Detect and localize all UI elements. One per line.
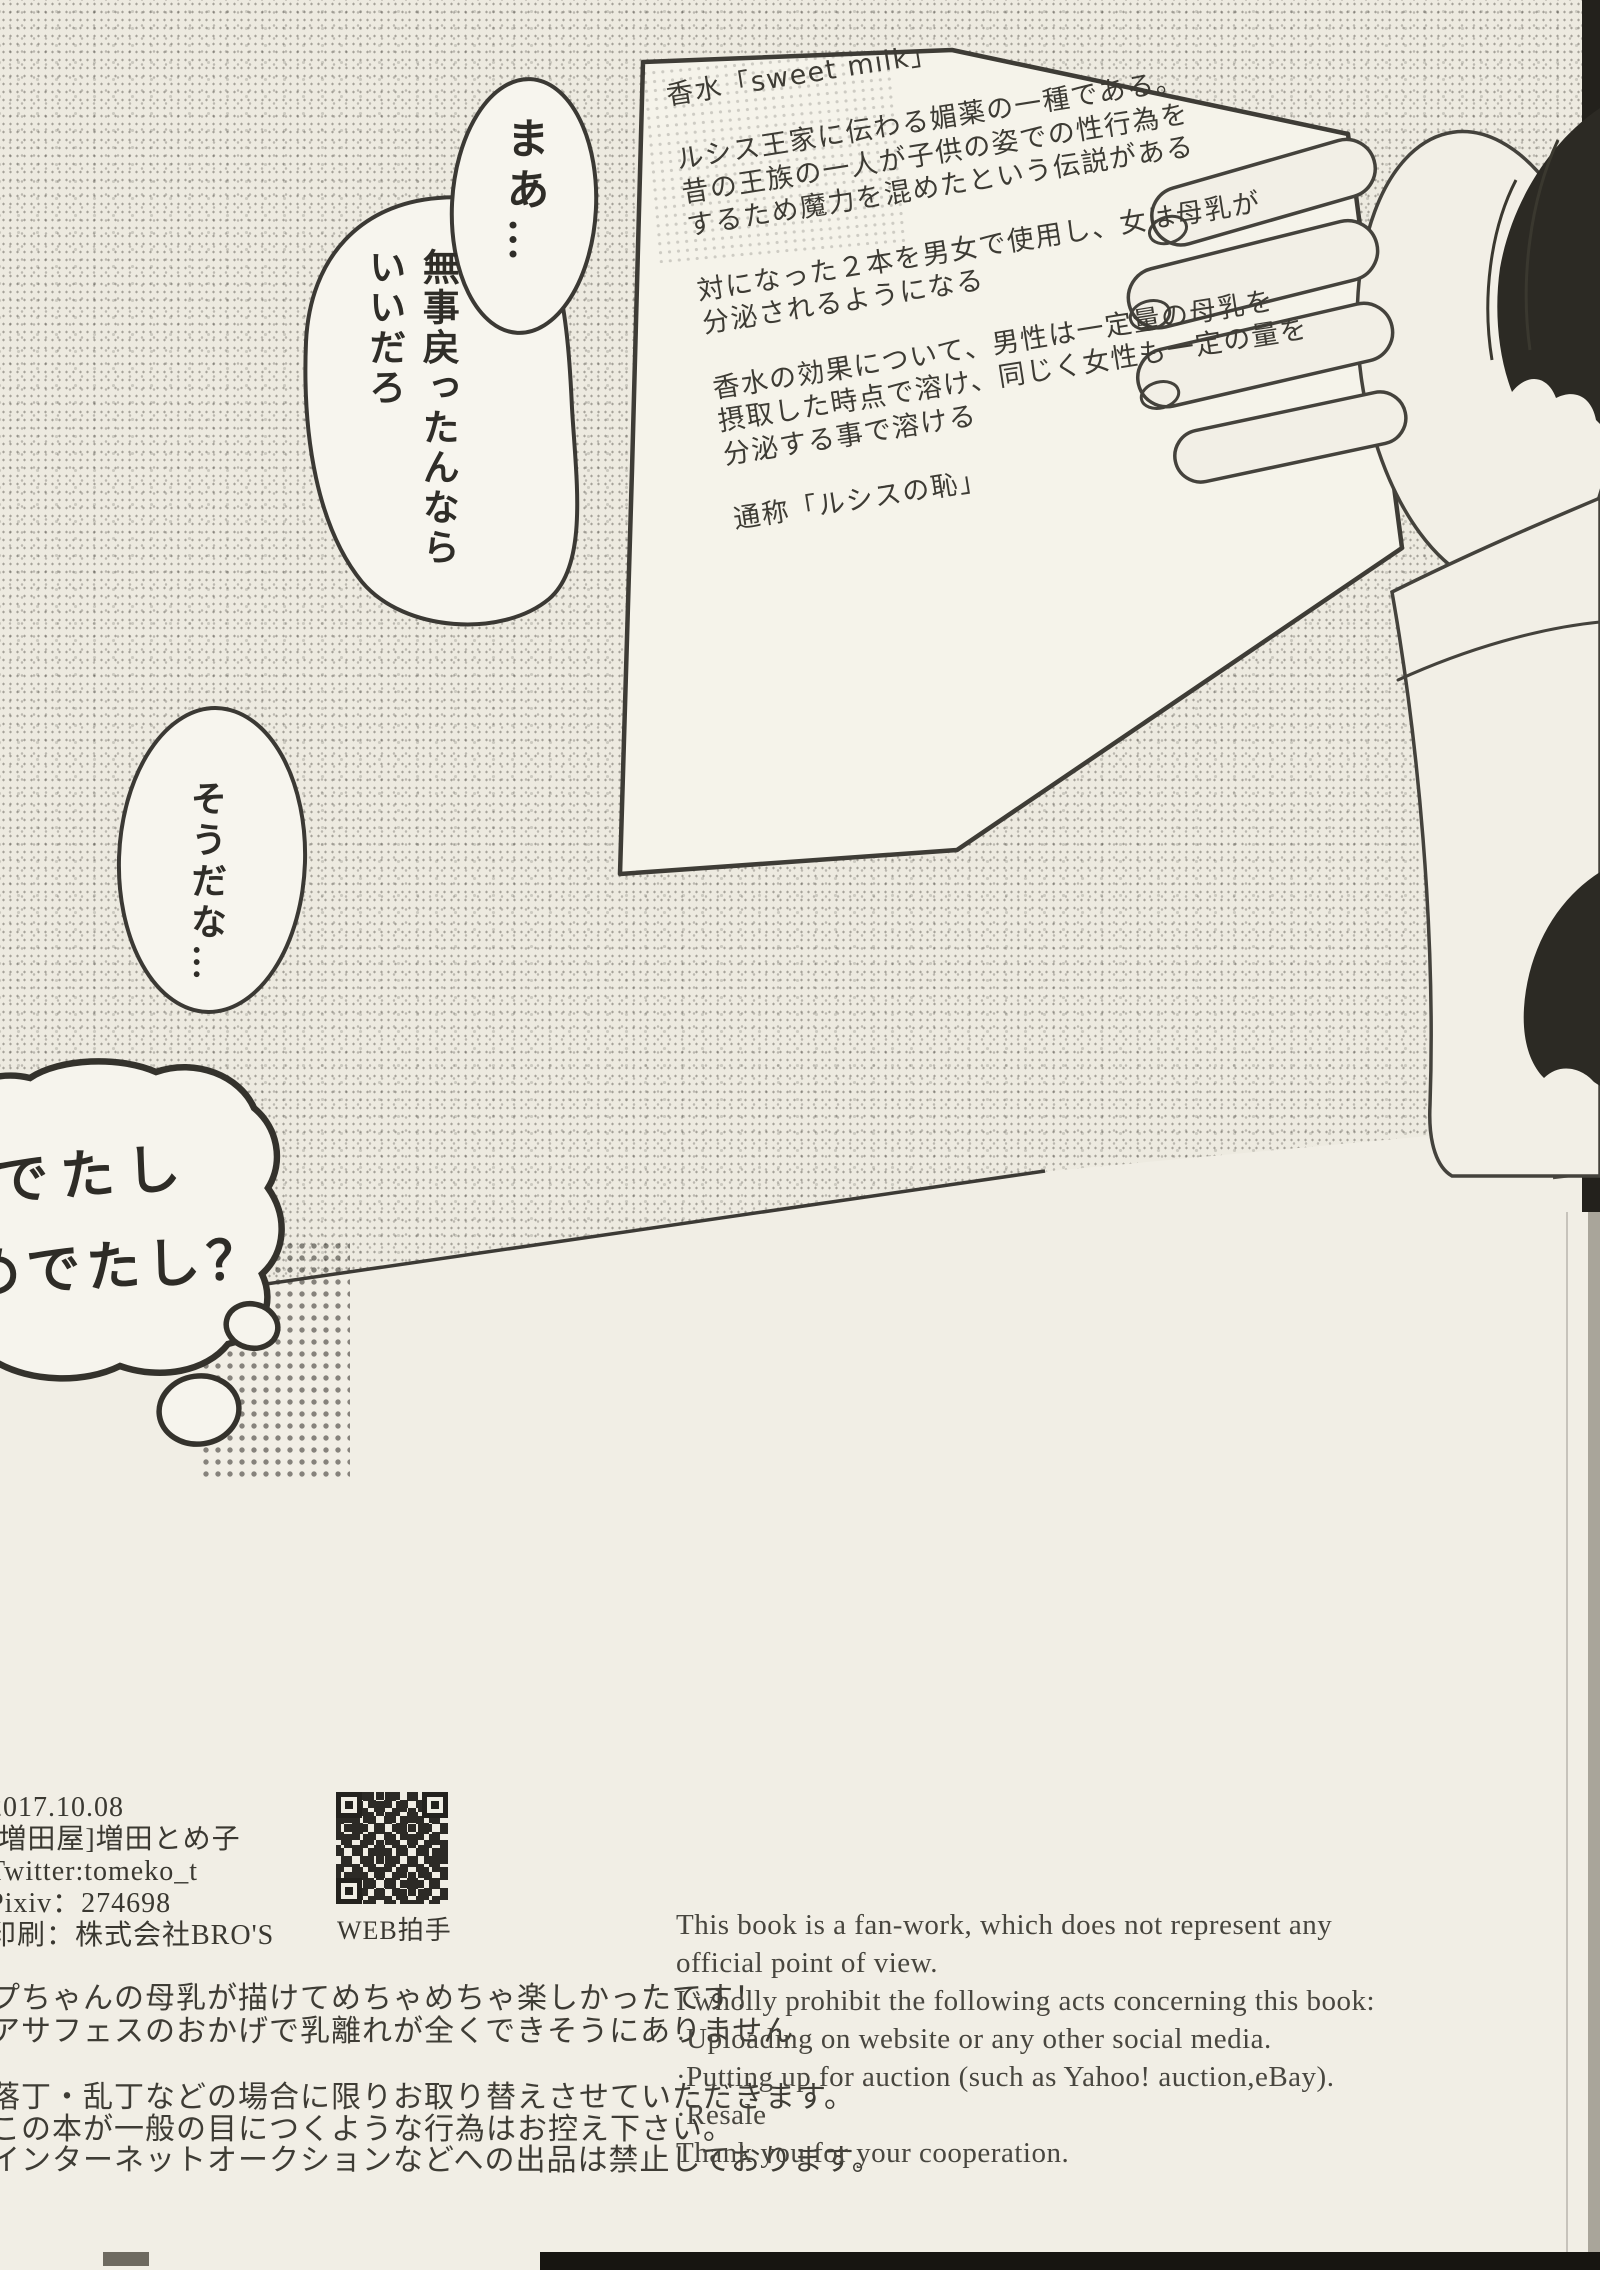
credit-pixiv: Pixiv：274698 bbox=[0, 1888, 274, 1920]
thought-text-line2: めでたし？ bbox=[0, 1214, 268, 1309]
credit-printer: 印刷：株式会社BRO'S bbox=[0, 1920, 274, 1952]
qr-finder bbox=[422, 1792, 448, 1818]
qr-finder bbox=[336, 1878, 362, 1904]
scan-bottom-mark bbox=[103, 2252, 149, 2266]
credit-circle-author: [増田屋]増田とめ子 bbox=[0, 1824, 274, 1856]
forearm-sleeve bbox=[1392, 498, 1600, 1176]
english-disclaimer: This book is a fan-work, which does not … bbox=[676, 1906, 1375, 2172]
table-edge-line bbox=[218, 1171, 1045, 1291]
bubble-souda-text: そうだな… bbox=[180, 780, 232, 1010]
qr-code bbox=[336, 1792, 448, 1904]
bubble-maa-text: まあ… bbox=[492, 116, 554, 316]
thought-bubble-smaller bbox=[155, 1371, 244, 1449]
page-gutter-grey bbox=[1588, 1212, 1600, 2270]
credit-twitter: Twitter:tomeko_t bbox=[0, 1856, 274, 1888]
credits-block: 2017.10.08 [増田屋]増田とめ子 Twitter:tomeko_t P… bbox=[0, 1792, 274, 1952]
doujinshi-afterword-page: 香水「sweet milk」 ルシス王家に伝わる媚薬の一種である。昔の王族の一人… bbox=[0, 0, 1600, 2270]
qr-finder bbox=[336, 1792, 362, 1818]
webclap-label: WEB拍手 bbox=[337, 1910, 452, 1947]
scan-faint-line bbox=[1566, 1212, 1568, 2270]
scan-bottom-bar bbox=[540, 2252, 1600, 2270]
bubble-main-text: 無事戻ったんならいいだろ bbox=[356, 248, 463, 588]
thought-text-line1: でたし bbox=[0, 1123, 195, 1216]
credit-date: 2017.10.08 bbox=[0, 1792, 274, 1824]
